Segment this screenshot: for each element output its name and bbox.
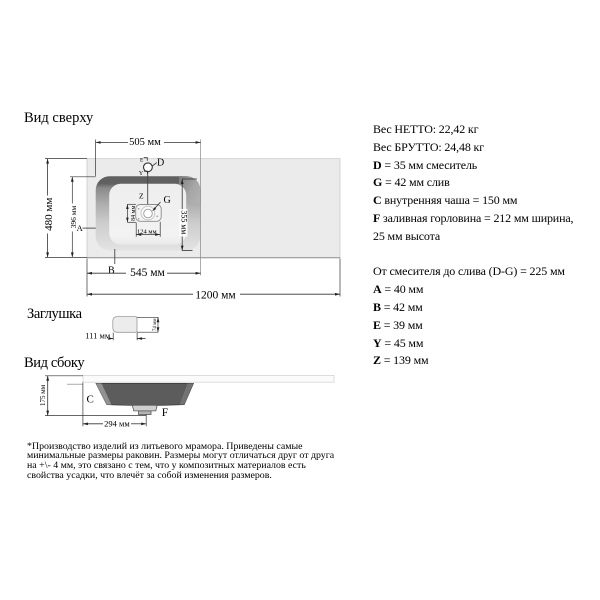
svg-text:G: G	[164, 195, 171, 206]
svg-text:Z: Z	[139, 191, 144, 200]
svg-text:124 мм: 124 мм	[137, 228, 157, 235]
svg-text:545 мм: 545 мм	[130, 267, 165, 279]
svg-text:Y: Y	[139, 171, 144, 177]
svg-text:505 мм: 505 мм	[129, 137, 161, 148]
svg-text:1200 мм: 1200 мм	[195, 289, 236, 301]
svg-text:175 мм: 175 мм	[39, 384, 47, 406]
svg-text:355 мм: 355 мм	[180, 210, 189, 234]
svg-text:D: D	[157, 158, 164, 169]
svg-text:294 мм: 294 мм	[104, 419, 130, 429]
svg-text:111 мм: 111 мм	[85, 331, 111, 341]
svg-text:84 мм: 84 мм	[131, 206, 137, 221]
svg-text:C: C	[87, 394, 94, 406]
svg-text:B: B	[108, 266, 115, 277]
svg-text:74 мм: 74 мм	[153, 318, 158, 331]
svg-text:F: F	[162, 407, 168, 419]
svg-text:480 мм: 480 мм	[43, 198, 55, 231]
